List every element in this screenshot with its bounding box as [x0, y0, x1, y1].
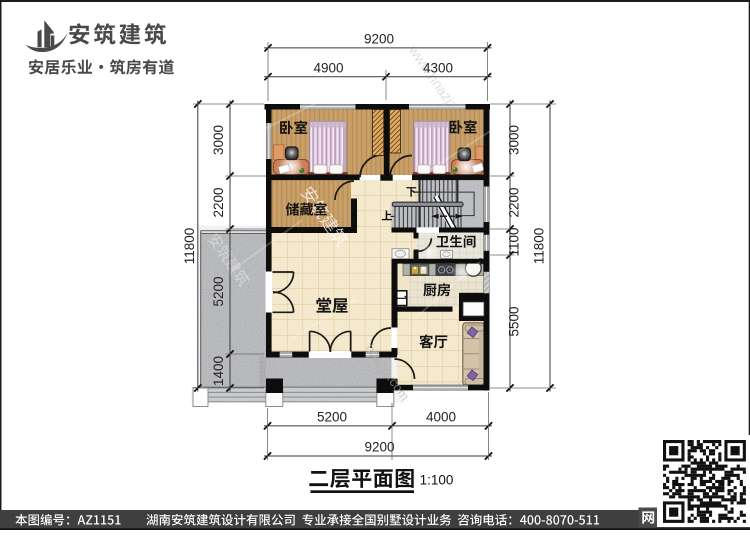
svg-text:5500: 5500	[507, 306, 522, 336]
svg-text:1400: 1400	[211, 356, 226, 386]
svg-text:5200: 5200	[317, 410, 347, 425]
svg-text:1:100: 1:100	[420, 473, 454, 488]
svg-text:2200: 2200	[211, 187, 226, 217]
svg-text:11800: 11800	[182, 228, 197, 265]
svg-text:1100: 1100	[507, 227, 522, 256]
svg-text:3000: 3000	[507, 125, 522, 155]
svg-text:5200: 5200	[211, 276, 226, 306]
svg-text:4900: 4900	[313, 61, 343, 76]
svg-text:11800: 11800	[532, 228, 547, 265]
svg-text:2200: 2200	[507, 187, 522, 217]
svg-text:9200: 9200	[364, 440, 394, 455]
svg-text:4000: 4000	[426, 410, 456, 425]
svg-text:3000: 3000	[211, 125, 226, 155]
svg-text:9200: 9200	[364, 32, 394, 47]
svg-text:4300: 4300	[423, 61, 453, 76]
